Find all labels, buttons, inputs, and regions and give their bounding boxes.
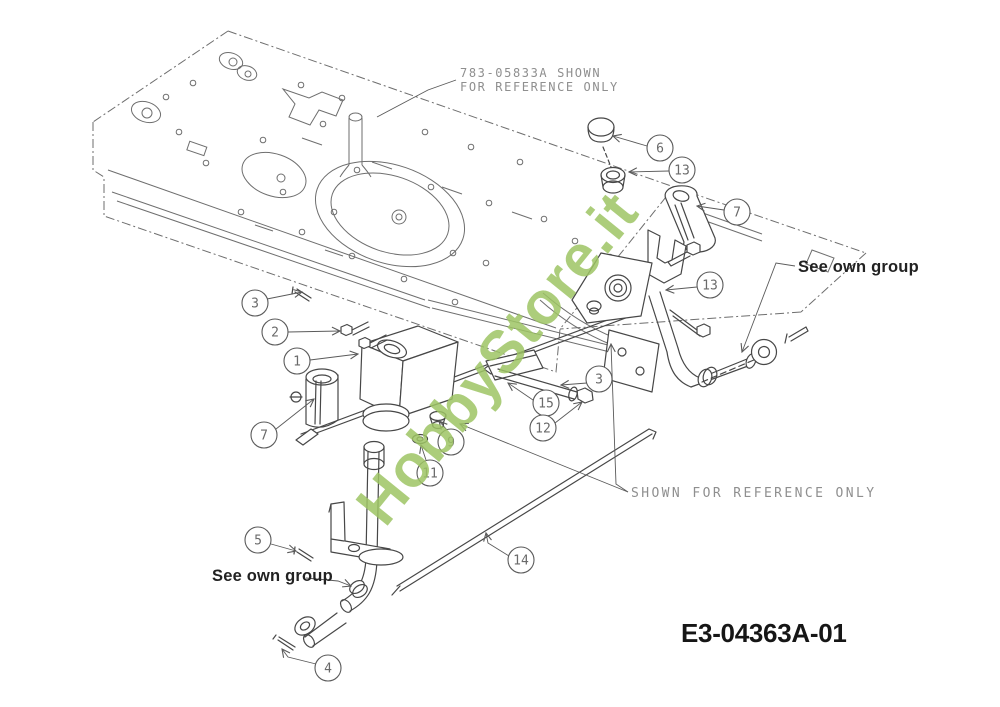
callout-number-15: 15: [538, 397, 554, 412]
see-own-group-label-left: See own group: [212, 567, 333, 586]
top-reference-note-line2: FOR REFERENCE ONLY: [460, 80, 619, 94]
callout-leader-11: [421, 445, 426, 460]
top-reference-leader: [377, 80, 456, 117]
callout-3-7: 3: [561, 366, 612, 392]
callout-5-13: 5: [245, 527, 296, 553]
callout-number-12: 12: [535, 422, 551, 437]
callout-number-11: 11: [422, 467, 438, 482]
mid-reference-note: SHOWN FOR REFERENCE ONLY: [631, 486, 876, 501]
top-reference-note-line1: 783-05833A SHOWN: [460, 66, 619, 80]
callout-leader-14: [486, 533, 509, 556]
callout-number-7: 7: [260, 429, 268, 444]
top-reference-note: 783-05833A SHOWN FOR REFERENCE ONLY: [460, 66, 619, 94]
drawing-number: E3-04363A-01: [681, 618, 847, 649]
see-own-group-label-right: See own group: [798, 258, 919, 277]
callout-3-4: 3: [242, 290, 302, 316]
callout-number-4: 4: [324, 662, 332, 677]
callout-number-9: 9: [447, 436, 455, 451]
callout-number-7: 7: [733, 206, 741, 221]
callout-number-1: 1: [293, 355, 301, 370]
callout-number-6: 6: [656, 142, 664, 157]
exploded-view-drawing: 6137133213151291175144: [0, 0, 1000, 707]
callout-leader-4: [282, 649, 316, 664]
callout-11-11: 11: [417, 445, 443, 486]
steering-parts-drawing: [273, 118, 808, 650]
callout-9-10: 9: [438, 421, 464, 455]
callout-4-15: 4: [282, 649, 341, 681]
callout-leader-3: [267, 292, 302, 299]
callout-2-5: 2: [262, 319, 340, 345]
callout-leader-3: [561, 383, 587, 385]
parts-diagram-page: 6137133213151291175144 783-05833A SHOWN …: [0, 0, 1000, 707]
callout-leader-13: [629, 171, 669, 172]
callout-number-14: 14: [513, 554, 529, 569]
callout-number-13: 13: [702, 279, 718, 294]
callout-leader-13: [666, 287, 697, 290]
callout-number-2: 2: [271, 326, 279, 341]
callout-number-13: 13: [674, 164, 690, 179]
callout-15-8: 15: [508, 383, 559, 416]
annotation-leaders: [306, 80, 795, 586]
callout-leader-5: [271, 544, 296, 551]
callout-leader-1: [310, 354, 358, 360]
callout-leader-6: [613, 136, 647, 146]
see-own-group-right-leader: [742, 263, 795, 352]
callout-leader-2: [288, 331, 340, 332]
callout-number-3: 3: [595, 373, 603, 388]
frame-holes: [163, 80, 613, 305]
callout-number-5: 5: [254, 534, 262, 549]
callout-number-3: 3: [251, 297, 259, 312]
callout-6-0: 6: [613, 135, 673, 161]
callout-14-14: 14: [486, 533, 534, 573]
